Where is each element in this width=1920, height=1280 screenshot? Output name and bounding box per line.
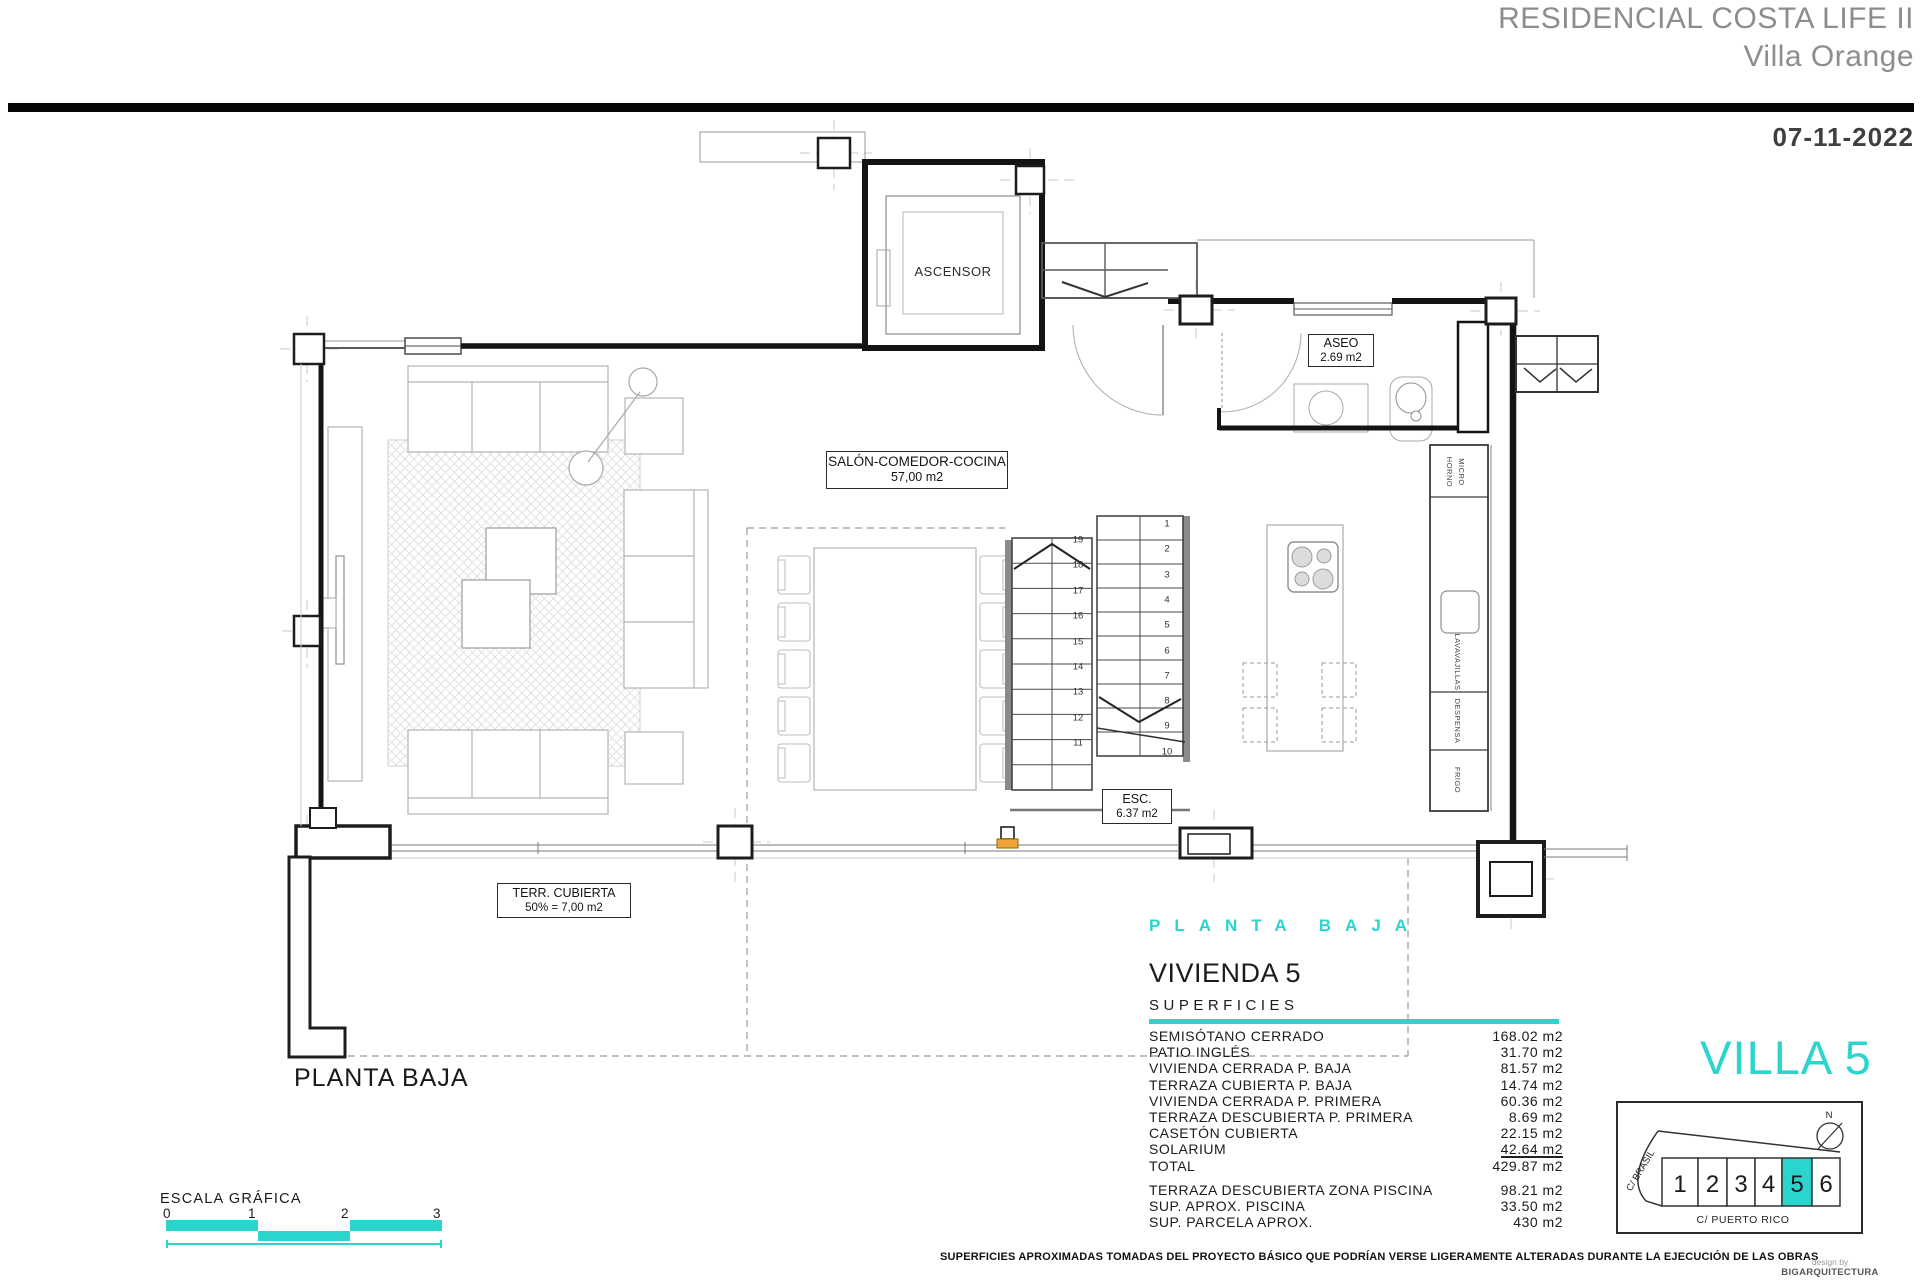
superficie-label: TERRAZA DESCUBIERTA ZONA PISCINA: [1149, 1182, 1433, 1198]
superficie-value: 22.15 m2: [1501, 1125, 1563, 1141]
stair-step-number: 9: [1164, 721, 1169, 732]
superficie-value: 81.57 m2: [1501, 1060, 1563, 1076]
superficie-label: VIVIENDA CERRADA P. PRIMERA: [1149, 1093, 1382, 1109]
superficie-label: SEMISÓTANO CERRADO: [1149, 1028, 1324, 1044]
plan-sheet: RESIDENCIAL COSTA LIFE II Villa Orange 0…: [0, 0, 1920, 1280]
stair-step-number: 4: [1164, 594, 1169, 605]
superficie-value: 42.64 m2: [1501, 1141, 1563, 1157]
stair-step-number: 5: [1164, 620, 1169, 631]
superficies-heading: SUPERFICIES: [1149, 997, 1299, 1014]
superficie-row: VIVIENDA CERRADA P. BAJA81.57 m2: [1149, 1060, 1563, 1076]
stair-step-number: 17: [1073, 585, 1084, 596]
superficie-row: TERRAZA DESCUBIERTA ZONA PISCINA98.21 m2: [1149, 1182, 1563, 1198]
superficie-value: 429.87 m2: [1492, 1158, 1563, 1174]
stair-step-number: 2: [1164, 544, 1169, 555]
superficie-row: SEMISÓTANO CERRADO168.02 m2: [1149, 1028, 1563, 1044]
superficie-row: SUP. APROX. PISCINA33.50 m2: [1149, 1198, 1563, 1214]
superficie-row: CASETÓN CUBIERTA22.15 m2: [1149, 1125, 1563, 1141]
superficie-value: 98.21 m2: [1501, 1182, 1563, 1198]
superficie-value: 168.02 m2: [1492, 1028, 1563, 1044]
design-by-label: design by: [1770, 1257, 1890, 1267]
scale-bar-segment-3: [350, 1220, 442, 1231]
stair-step-number: 8: [1164, 696, 1169, 707]
stair-numbers: 19181716151413121112345678910: [0, 0, 1920, 1280]
superficie-value: 430 m2: [1513, 1214, 1563, 1230]
scale-end-tick: [166, 1240, 168, 1248]
stair-step-number: 6: [1164, 645, 1169, 656]
superficie-label: TOTAL: [1149, 1158, 1195, 1174]
superficie-value: 33.50 m2: [1501, 1198, 1563, 1214]
superficie-row: VIVIENDA CERRADA P. PRIMERA60.36 m2: [1149, 1093, 1563, 1109]
superficie-label: CASETÓN CUBIERTA: [1149, 1125, 1298, 1141]
scale-baseline: [166, 1243, 442, 1245]
superficies-extra-table: TERRAZA DESCUBIERTA ZONA PISCINA98.21 m2…: [1149, 1182, 1563, 1231]
stair-step-number: 19: [1073, 535, 1084, 546]
superficie-label: SOLARIUM: [1149, 1141, 1226, 1157]
stair-step-number: 3: [1164, 569, 1169, 580]
scale-tick-2: 2: [341, 1206, 349, 1221]
superficie-value: 31.70 m2: [1501, 1044, 1563, 1060]
stair-step-number: 10: [1162, 746, 1173, 757]
scale-bar-segment-2: [258, 1231, 350, 1241]
scale-tick-3: 3: [433, 1206, 441, 1221]
disclaimer-text: SUPERFICIES APROXIMADAS TOMADAS DEL PROY…: [940, 1251, 1819, 1263]
scale-bar-segment-1: [166, 1220, 258, 1231]
superficie-value: 8.69 m2: [1509, 1109, 1563, 1125]
superficie-row: PATIO INGLÉS31.70 m2: [1149, 1044, 1563, 1060]
stair-step-number: 18: [1073, 560, 1084, 571]
superficie-label: TERRAZA CUBIERTA P. BAJA: [1149, 1077, 1352, 1093]
design-credit: design by BIGARQUITECTURA: [1770, 1257, 1890, 1279]
accent-rule: [1149, 1019, 1559, 1024]
superficie-row: SOLARIUM42.64 m2: [1149, 1141, 1563, 1157]
stair-step-number: 16: [1073, 611, 1084, 622]
superficie-value: 14.74 m2: [1501, 1077, 1563, 1093]
stair-step-number: 14: [1073, 662, 1084, 673]
villa-title: VILLA 5: [1656, 1030, 1916, 1085]
superficie-label: TERRAZA DESCUBIERTA P. PRIMERA: [1149, 1109, 1413, 1125]
scale-tick-1: 1: [248, 1206, 256, 1221]
stair-step-number: 1: [1164, 519, 1169, 530]
superficie-row: TERRAZA DESCUBIERTA P. PRIMERA8.69 m2: [1149, 1109, 1563, 1125]
superficie-label: PATIO INGLÉS: [1149, 1044, 1250, 1060]
studio-name: BIGARQUITECTURA: [1770, 1267, 1890, 1278]
scale-tick-0: 0: [163, 1206, 171, 1221]
superficies-table: SEMISÓTANO CERRADO168.02 m2PATIO INGLÉS3…: [1149, 1028, 1563, 1174]
superficie-label: SUP. PARCELA APROX.: [1149, 1214, 1313, 1230]
superficie-row: SUP. PARCELA APROX.430 m2: [1149, 1214, 1563, 1230]
stair-step-number: 13: [1073, 687, 1084, 698]
superficie-label: SUP. APROX. PISCINA: [1149, 1198, 1305, 1214]
scale-title: ESCALA GRÁFICA: [160, 1191, 302, 1207]
scale-end-tick: [440, 1240, 442, 1248]
superficie-label: VIVIENDA CERRADA P. BAJA: [1149, 1060, 1351, 1076]
superficie-row: TOTAL429.87 m2: [1149, 1158, 1563, 1174]
vivienda-heading: VIVIENDA 5: [1149, 958, 1301, 989]
stair-step-number: 15: [1073, 636, 1084, 647]
superficie-value: 60.36 m2: [1501, 1093, 1563, 1109]
stair-step-number: 11: [1073, 738, 1083, 749]
stair-step-number: 12: [1073, 712, 1084, 723]
stair-step-number: 7: [1164, 670, 1169, 681]
superficie-row: TERRAZA CUBIERTA P. BAJA14.74 m2: [1149, 1077, 1563, 1093]
floor-title: PLANTA BAJA: [1149, 916, 1421, 936]
